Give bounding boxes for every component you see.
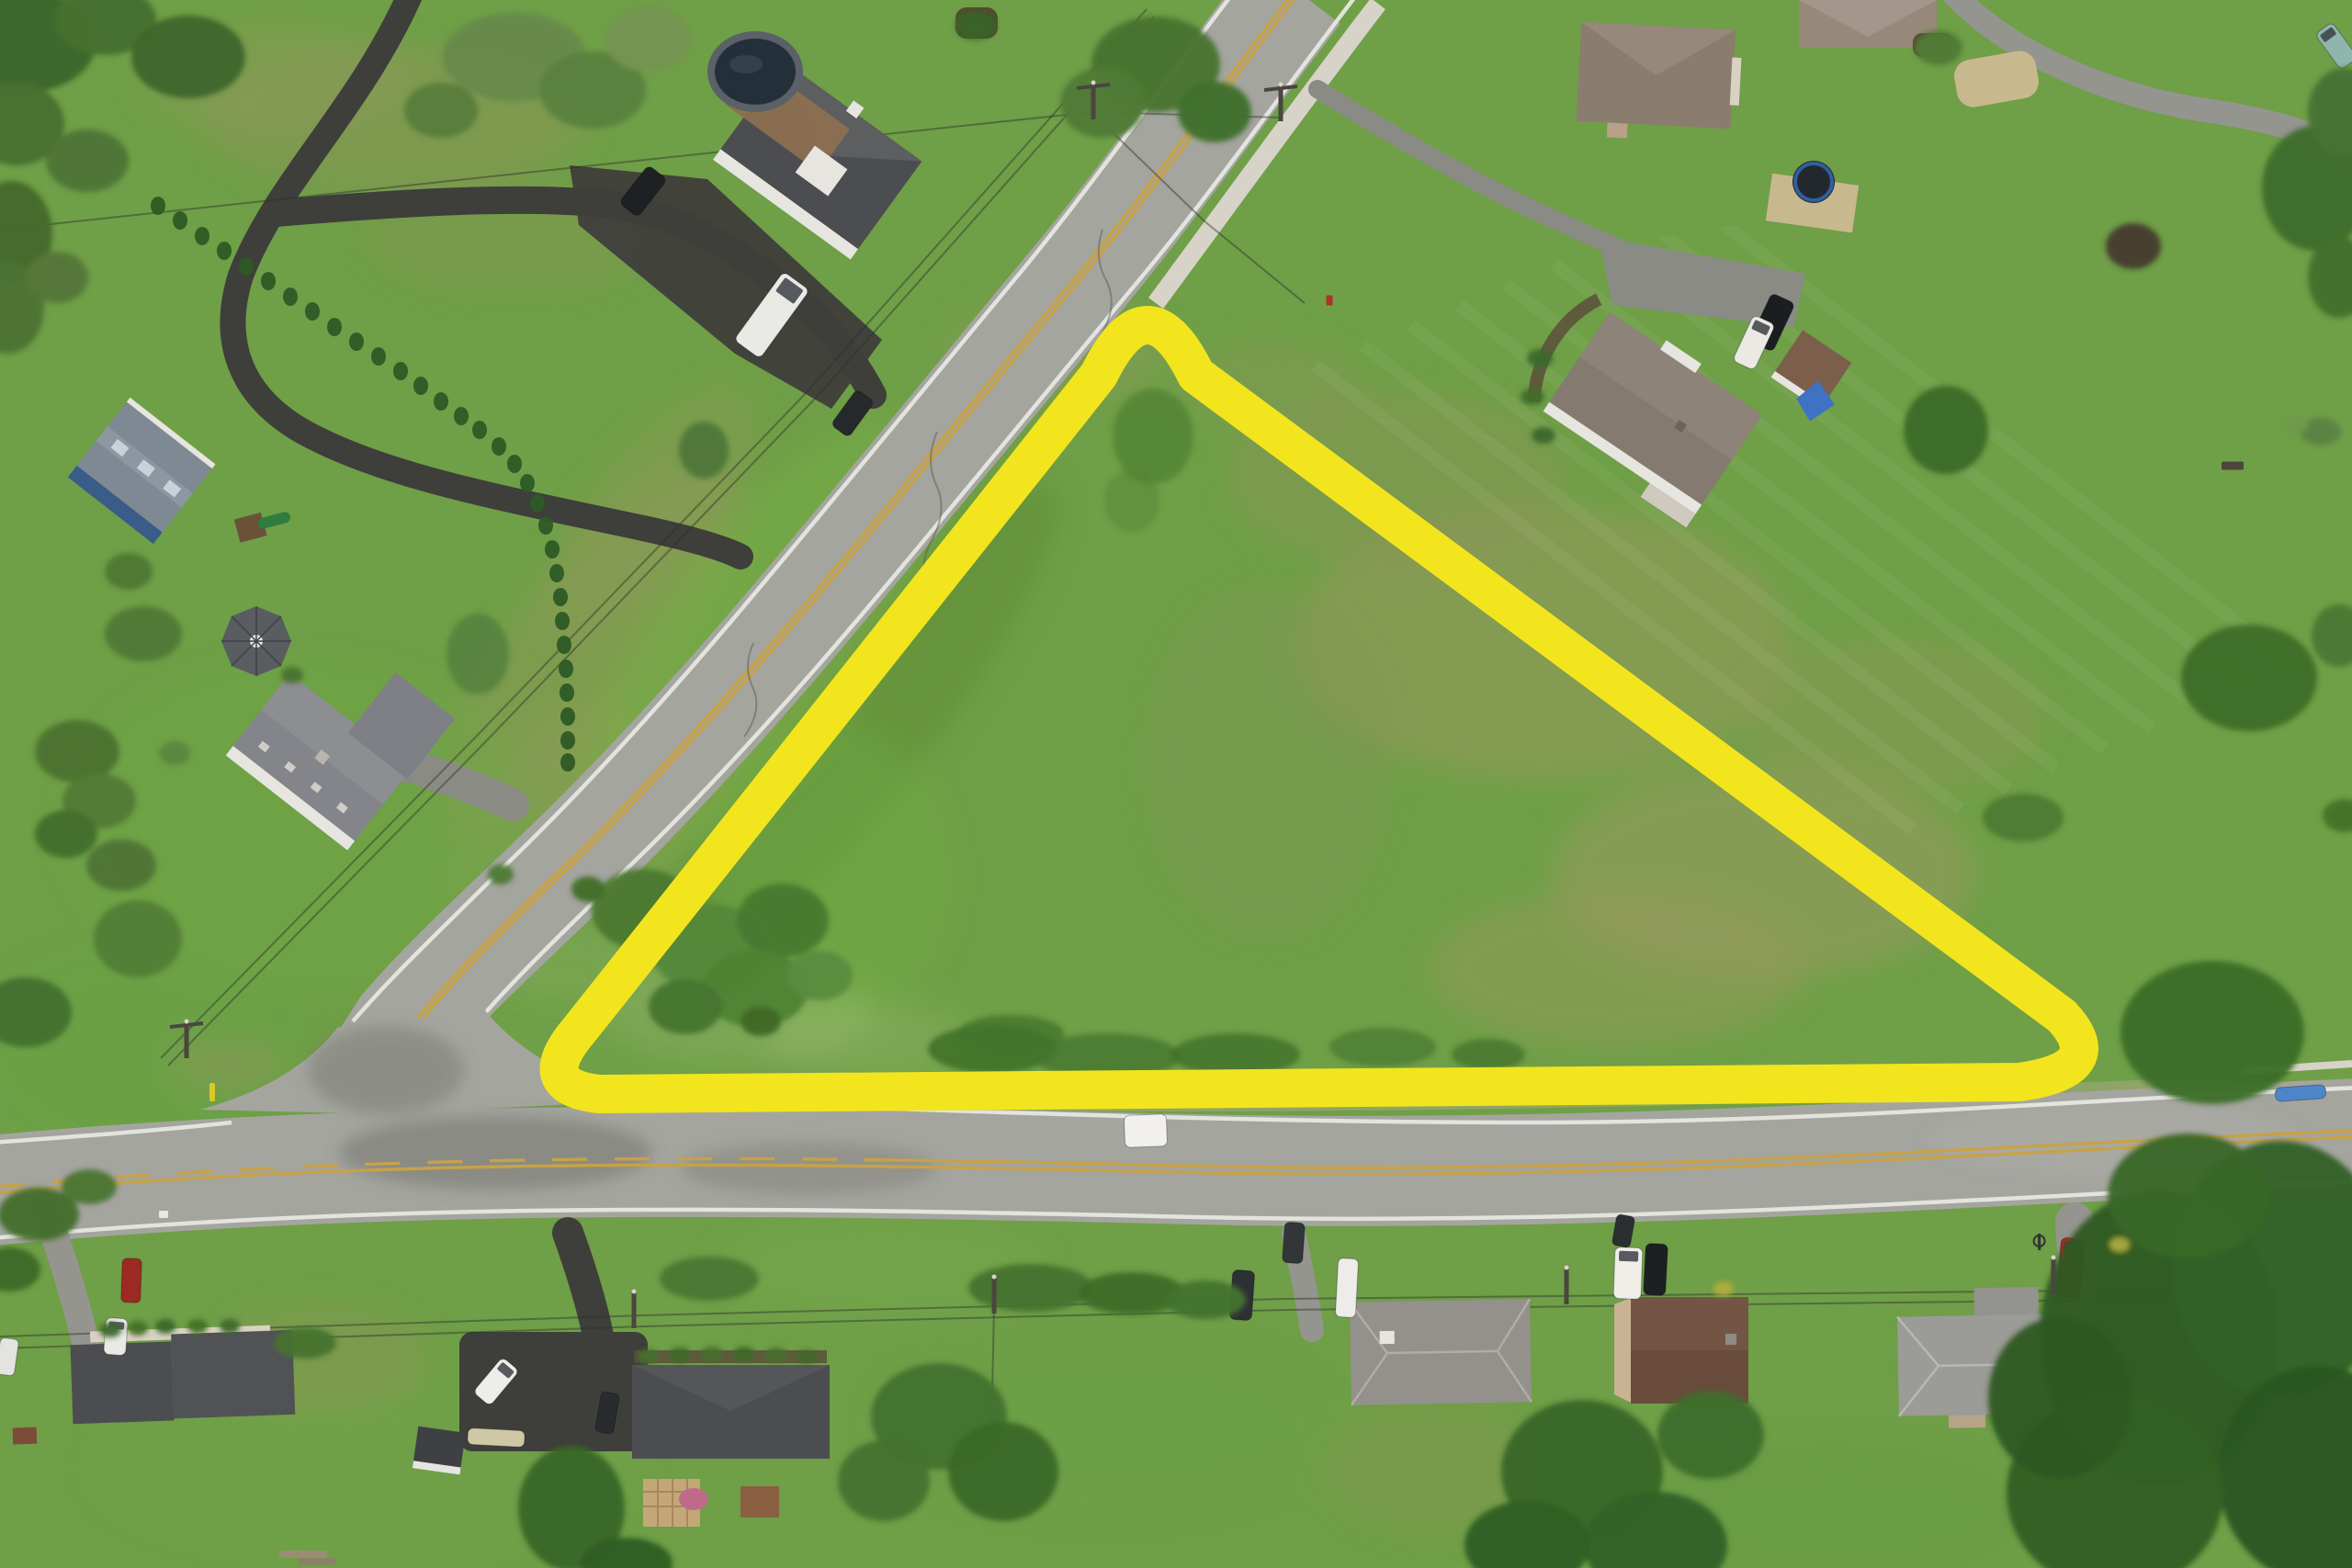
utility-pole: [2052, 1256, 2056, 1295]
utility-pole: [1565, 1266, 1569, 1305]
tree: [838, 1440, 930, 1521]
vehicle-tan-boat-b: [468, 1427, 526, 1447]
arborvitae-tree: [239, 257, 254, 276]
tree: [105, 553, 153, 590]
grass-patch: [1148, 588, 1387, 937]
white-mailbox: [159, 1211, 168, 1218]
tree: [1988, 1317, 2131, 1479]
tree: [1178, 82, 1251, 142]
arborvitae-tree: [393, 362, 408, 380]
arborvitae-tree: [560, 707, 575, 726]
tree: [1915, 30, 1962, 65]
tree: [46, 130, 129, 192]
grass-patch: [1429, 891, 1805, 1047]
tree: [274, 1327, 336, 1359]
tree: [155, 1319, 175, 1334]
arborvitae-tree: [545, 540, 560, 558]
tree: [1527, 349, 1553, 367]
pool-reflection: [729, 55, 763, 73]
arborvitae-tree: [560, 753, 575, 772]
arborvitae-tree: [195, 227, 209, 245]
red-mailbox: [1327, 296, 1333, 306]
house-a-patio: [13, 1427, 38, 1445]
arborvitae-tree: [557, 636, 571, 654]
tree: [605, 6, 693, 72]
arborvitae-tree: [151, 197, 165, 215]
shed-b: [413, 1427, 466, 1475]
tree: [571, 876, 605, 902]
house-d: [1614, 1297, 1748, 1404]
house-c-chimney: [1380, 1331, 1395, 1344]
arborvitae-tree: [530, 494, 545, 513]
arborvitae-tree: [413, 377, 428, 395]
tree: [701, 1347, 723, 1361]
utility-pole: [992, 1275, 997, 1314]
tree: [2181, 625, 2317, 731]
driftwood-2: [299, 1559, 335, 1565]
tree: [1532, 427, 1555, 444]
vehicle-red-pickup-west: [121, 1258, 142, 1303]
tree: [94, 900, 182, 977]
tree: [765, 1348, 787, 1362]
garden-bench: [2222, 462, 2244, 470]
pink-bush: [679, 1488, 708, 1510]
trampoline-mat: [1792, 161, 1835, 203]
house-ne-upper-deck: [1607, 122, 1628, 138]
tree: [737, 884, 829, 957]
tree: [1657, 1391, 1764, 1479]
tree: [86, 840, 156, 891]
tree: [786, 951, 853, 1000]
tree: [1104, 469, 1159, 532]
tree: [637, 1349, 659, 1364]
tree: [187, 1319, 208, 1334]
arborvitae-tree: [305, 302, 320, 321]
driftwood-1: [279, 1551, 327, 1558]
tree: [948, 1422, 1058, 1521]
tree: [281, 667, 303, 683]
tree: [128, 1321, 148, 1336]
arborvitae-tree: [520, 474, 535, 492]
tree: [2106, 223, 2161, 269]
tree: [957, 1015, 1064, 1052]
arborvitae-tree: [349, 333, 364, 351]
arborvitae-tree: [538, 516, 553, 535]
tree: [733, 1347, 755, 1361]
yellow-marker-post: [209, 1083, 215, 1101]
house-c: [1350, 1299, 1532, 1404]
tree: [1713, 1281, 1734, 1296]
gazebo: [221, 606, 291, 676]
tree: [679, 422, 729, 479]
house-d-gable-wall: [1614, 1297, 1633, 1404]
tree: [220, 1319, 240, 1334]
tree: [1521, 389, 1544, 405]
arborvitae-tree: [283, 288, 298, 306]
tree: [447, 614, 509, 694]
house-d-chimney: [1725, 1334, 1736, 1345]
tree: [2120, 961, 2304, 1104]
tree: [2109, 1237, 2130, 1252]
gazebo-ridges: [221, 606, 291, 676]
vehicle-black-pickup-d: [1644, 1243, 1668, 1295]
vehicle-white-camper-c: [1335, 1258, 1358, 1317]
arborvitae-tree: [327, 318, 342, 336]
arborvitae-tree: [261, 272, 276, 290]
tree: [968, 1264, 1093, 1312]
grass-patch: [175, 1043, 285, 1089]
tree: [660, 1257, 759, 1301]
tree: [1060, 68, 1145, 138]
arborvitae-tree: [371, 347, 386, 366]
tree: [797, 1350, 817, 1363]
aerial-photo-canvas: [0, 0, 2352, 1568]
arborvitae-tree: [560, 731, 575, 750]
tree: [1983, 794, 2064, 841]
tree: [1904, 386, 1988, 474]
tree: [62, 1169, 117, 1204]
arborvitae-tree: [553, 588, 568, 606]
vehicle-white-rv-d: [1613, 1247, 1643, 1299]
arborvitae-tree: [507, 455, 522, 473]
tree: [1165, 1280, 1246, 1319]
vehicle-blue-tarp-boat: [2275, 1085, 2326, 1102]
tree: [2285, 416, 2309, 433]
arborvitae-tree: [559, 660, 573, 678]
tree: [669, 1348, 691, 1362]
tree: [131, 16, 245, 98]
tree: [105, 606, 182, 661]
tree: [99, 1323, 121, 1337]
tree: [404, 83, 478, 138]
tree: [649, 979, 722, 1034]
tree: [741, 1007, 781, 1036]
arborvitae-tree: [555, 612, 570, 630]
tree: [2108, 1134, 2269, 1258]
tree: [26, 252, 88, 303]
tree: [35, 720, 119, 783]
tree: [35, 810, 97, 858]
arborvitae-tree: [549, 564, 564, 582]
arborvitae-tree: [434, 392, 448, 411]
vehicle-dark-van-c2: [1282, 1222, 1305, 1263]
arborvitae-tree: [454, 407, 469, 425]
tree: [955, 12, 996, 39]
house-e-deck: [1949, 1415, 1985, 1428]
tree: [1113, 389, 1193, 484]
arborvitae-tree: [492, 437, 506, 456]
arborvitae-tree: [560, 683, 574, 702]
aerial-screenshot: [0, 0, 2352, 1568]
tree: [1329, 1028, 1436, 1066]
arborvitae-tree: [472, 421, 487, 439]
house-b-deck: [741, 1486, 779, 1517]
tree: [488, 864, 514, 885]
vehicle-white-trailer-road: [1124, 1114, 1167, 1148]
arborvitae-tree: [217, 242, 232, 260]
tree: [1452, 1039, 1525, 1070]
arborvitae-tree: [173, 211, 187, 230]
tree: [159, 741, 190, 765]
utility-pole: [632, 1290, 637, 1329]
